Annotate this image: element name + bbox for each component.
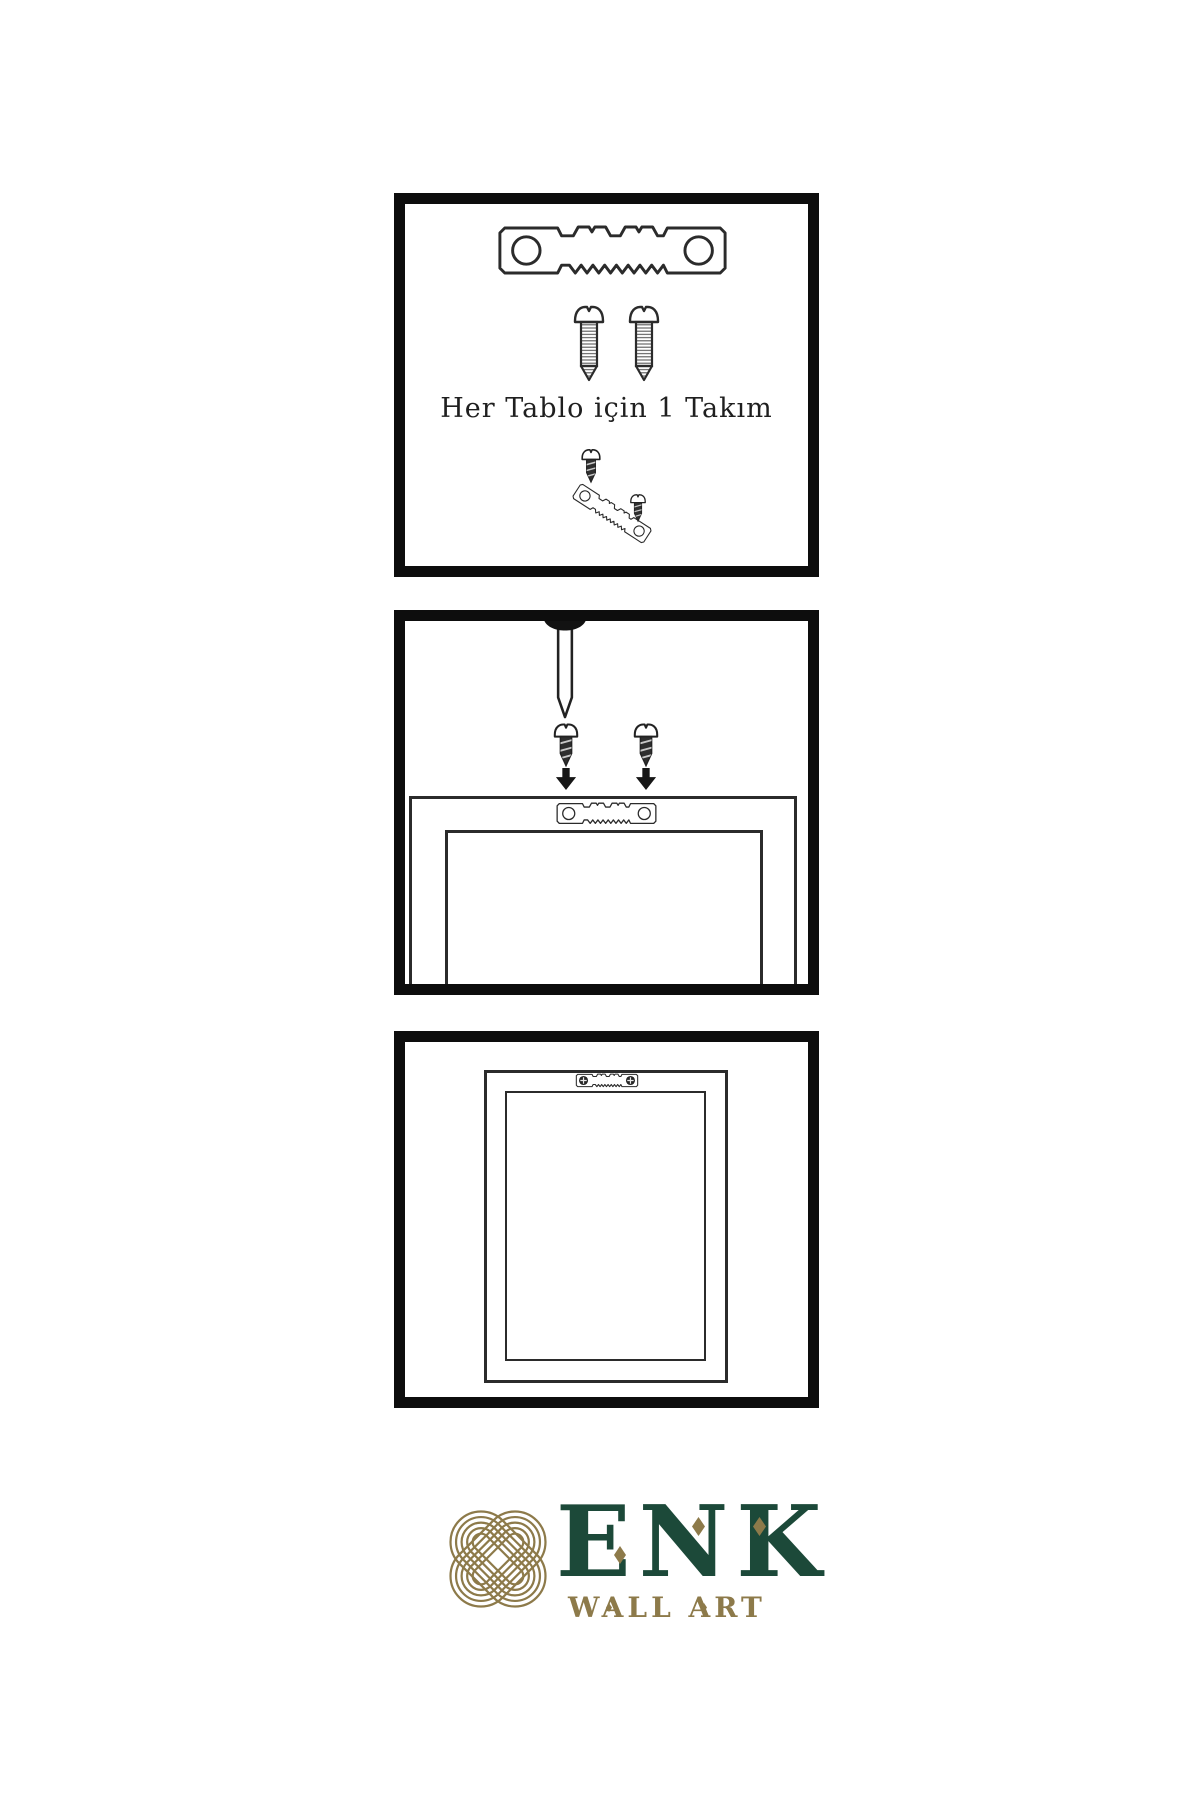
knot-mark-icon: [437, 1496, 559, 1622]
wall-nail-icon: [543, 621, 587, 721]
brand-name: ENK: [556, 1494, 829, 1592]
mount-hanger-panel: [394, 610, 819, 995]
dark-screw-icon: [580, 447, 602, 485]
brand-subtitle: WALL ART: [568, 1593, 766, 1623]
frame-inner-outline: [505, 1091, 706, 1361]
sawtooth-hanger-icon: [495, 223, 730, 278]
dark-screw-icon: [552, 722, 580, 768]
arrow-down-icon: [555, 768, 577, 790]
installed-sawtooth-hanger-icon: [575, 1071, 639, 1090]
frame-inner-outline: [445, 830, 763, 995]
mounted-sawtooth-hanger-icon: [555, 801, 658, 826]
screw-icon: [571, 304, 607, 382]
hang-frame-panel: [394, 1031, 819, 1408]
arrow-down-icon: [635, 768, 657, 790]
kit-caption: Her Tablo için 1 Takım: [405, 393, 808, 424]
dark-screw-icon: [629, 491, 647, 525]
dark-screw-icon: [632, 722, 660, 768]
hardware-kit-panel: Her Tablo için 1 Takım: [394, 193, 819, 577]
screw-icon: [626, 304, 662, 382]
